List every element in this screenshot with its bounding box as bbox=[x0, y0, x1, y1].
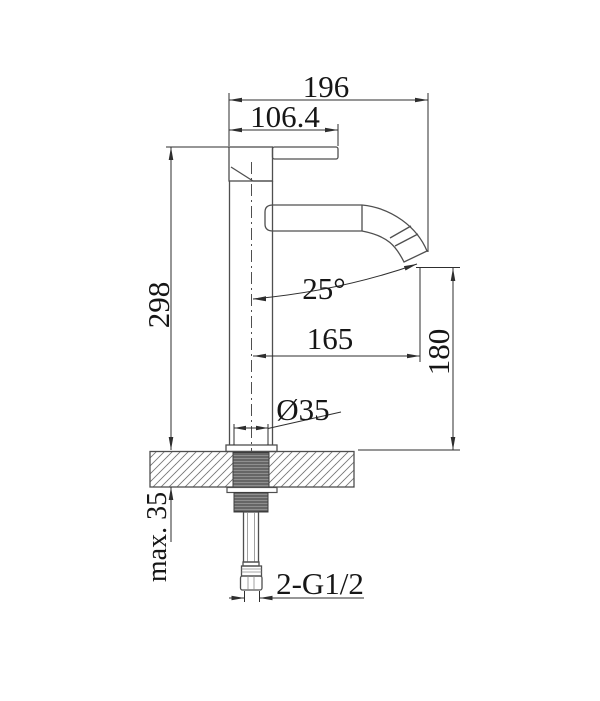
faucet-head bbox=[229, 147, 273, 181]
arrowhead bbox=[415, 98, 428, 103]
dim-spout-outlet-height: 180 bbox=[358, 268, 460, 451]
dim-shank-diameter: Ø35 bbox=[234, 392, 341, 445]
threaded-shank-upper bbox=[233, 453, 269, 488]
dim-label-spout-angle: 25° bbox=[302, 271, 345, 306]
dim-label-deck-thickness: max. 35 bbox=[142, 492, 173, 582]
arrowhead bbox=[253, 354, 266, 359]
dim-inlet-thread: 2-G1/2 bbox=[229, 566, 364, 602]
arrowhead bbox=[169, 147, 174, 160]
arrowhead bbox=[169, 437, 174, 450]
spout bbox=[265, 205, 427, 262]
supply-tube bbox=[241, 512, 263, 590]
arrowhead bbox=[229, 98, 242, 103]
dim-deck-thickness: max. 35 bbox=[142, 487, 173, 582]
hex-end-fitting bbox=[241, 576, 263, 590]
arrowhead bbox=[232, 596, 245, 601]
arrowhead bbox=[256, 426, 268, 430]
deck-cross-section bbox=[150, 452, 354, 513]
spout-tip-seam-2 bbox=[395, 234, 418, 246]
arrowhead bbox=[260, 596, 273, 601]
lever-handle bbox=[273, 147, 339, 159]
arrowhead bbox=[234, 426, 246, 430]
arrowhead bbox=[451, 268, 456, 281]
connector-ribs bbox=[242, 566, 262, 576]
head-taper-line bbox=[231, 167, 253, 181]
arrowhead bbox=[325, 128, 338, 133]
washer bbox=[227, 488, 277, 493]
dim-spout-angle: 25° bbox=[253, 264, 417, 306]
dim-handle-length: 106.4 bbox=[229, 99, 338, 146]
arrowhead bbox=[229, 128, 242, 133]
drawing-svg: 196 106.4 298 max. 35 25° 165 bbox=[0, 0, 600, 701]
arrowhead bbox=[407, 354, 420, 359]
arrowhead bbox=[404, 264, 417, 271]
dim-body-height: 298 bbox=[141, 147, 229, 450]
dim-label-shank-diameter: Ø35 bbox=[276, 392, 329, 427]
dim-label-handle-length: 106.4 bbox=[250, 99, 320, 134]
faucet-technical-drawing: 196 106.4 298 max. 35 25° 165 bbox=[0, 0, 600, 701]
dim-label-body-height: 298 bbox=[141, 282, 176, 329]
dim-label-spout-outlet-height: 180 bbox=[421, 329, 456, 376]
dim-label-spout-reach: 165 bbox=[307, 321, 354, 356]
arrowhead bbox=[253, 296, 266, 301]
threaded-shank-lower bbox=[234, 493, 268, 513]
spout-tip-seam-1 bbox=[390, 226, 411, 238]
dim-overall-width: 196 bbox=[229, 69, 428, 252]
tube bbox=[244, 512, 259, 562]
arrowhead bbox=[451, 437, 456, 450]
dim-label-inlet-thread: 2-G1/2 bbox=[276, 566, 364, 601]
